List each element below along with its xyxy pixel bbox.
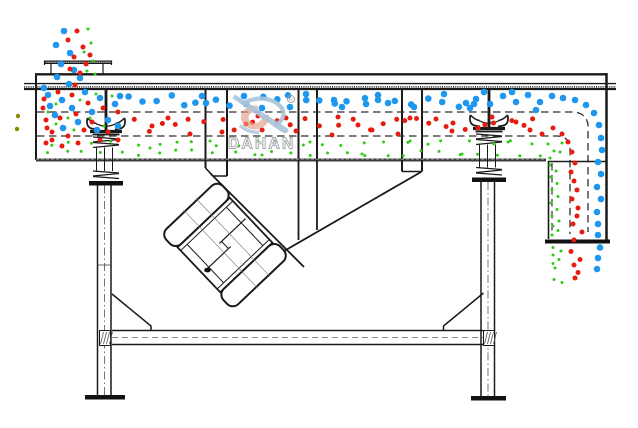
svg-text:DAHAN: DAHAN <box>228 136 295 153</box>
svg-text:R: R <box>289 97 293 103</box>
